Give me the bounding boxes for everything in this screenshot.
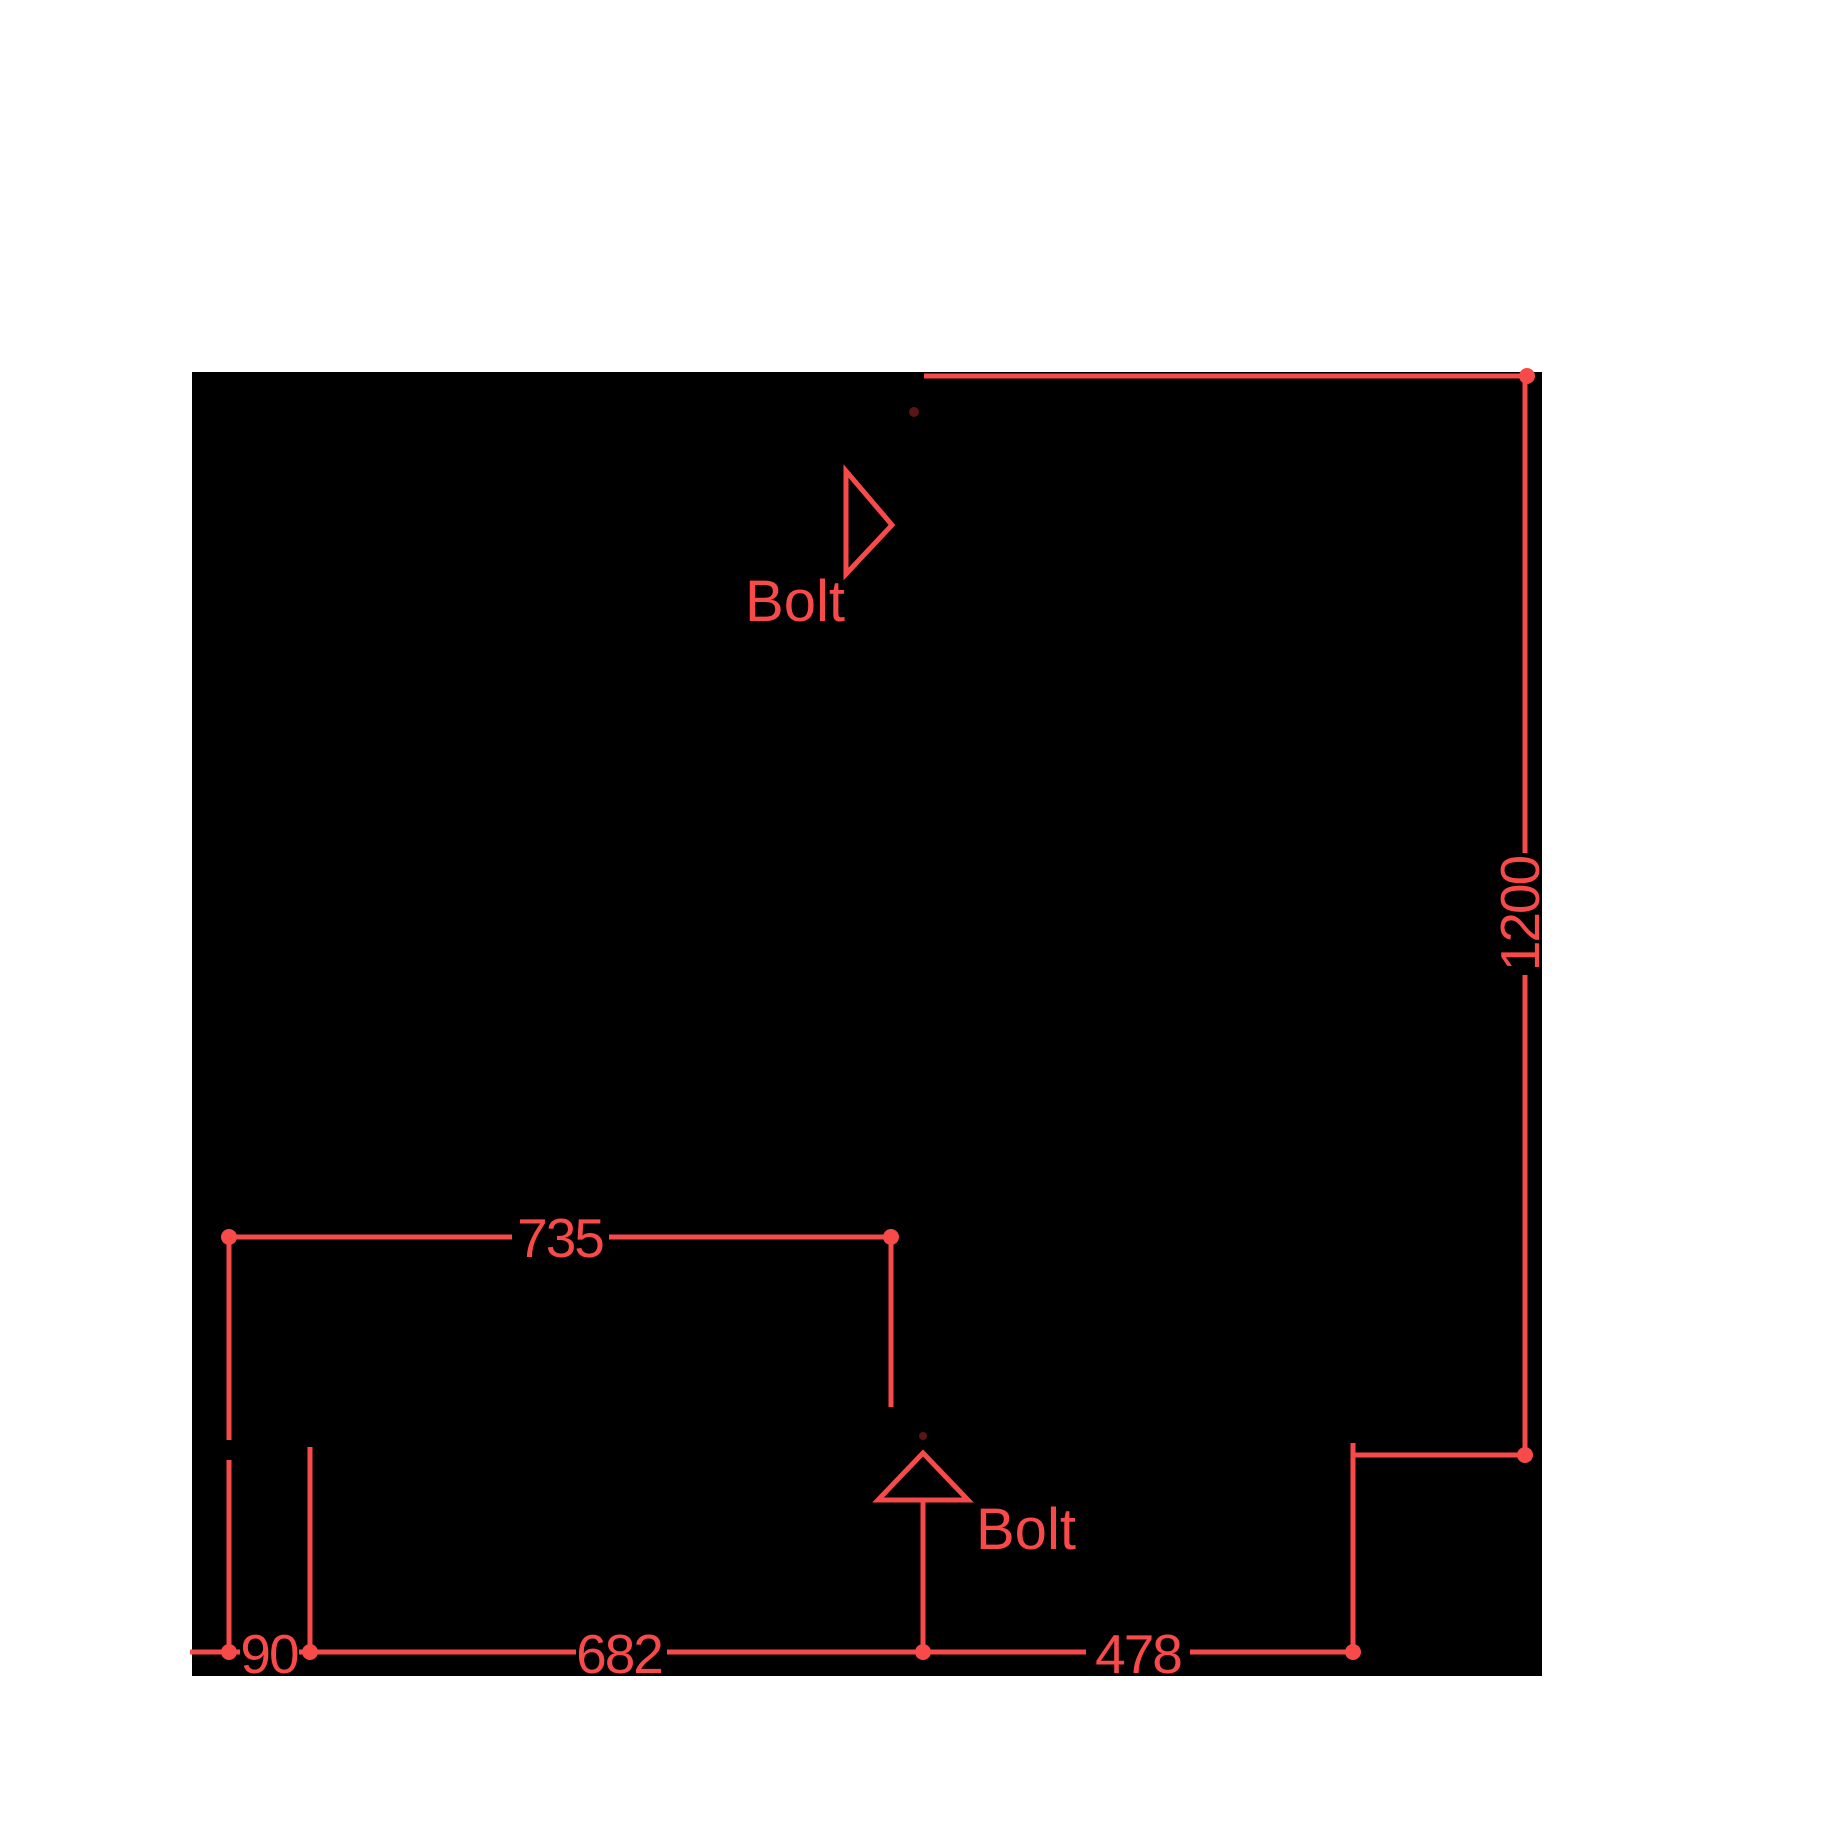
dim-label-1200: 1200 [1489, 856, 1551, 971]
dim-label-478: 478 [1095, 1623, 1181, 1685]
dot-735-left [221, 1229, 237, 1245]
bolt-top-point-marker [909, 407, 919, 417]
dot-735-right [883, 1229, 899, 1245]
dot-bottom-2 [302, 1644, 318, 1660]
bolt-top-label: Bolt [745, 569, 845, 634]
machine-silhouette [192, 372, 1542, 1676]
drawing-canvas: 1200 735 90 682 478 Bolt Bolt [0, 0, 1837, 1836]
bolt-bottom-point-marker [919, 1432, 927, 1440]
dot-top-right [1519, 368, 1535, 384]
dim-label-90: 90 [240, 1623, 298, 1685]
dot-bottom-bolt [915, 1644, 931, 1660]
dot-step-corner [1517, 1447, 1533, 1463]
dot-bottom-1 [221, 1644, 237, 1660]
dim-label-682: 682 [576, 1623, 662, 1685]
dot-bottom-right [1345, 1644, 1361, 1660]
dim-label-735: 735 [517, 1207, 603, 1269]
bolt-bottom-label: Bolt [976, 1497, 1076, 1562]
dimension-drawing: 1200 735 90 682 478 Bolt Bolt [0, 0, 1837, 1836]
